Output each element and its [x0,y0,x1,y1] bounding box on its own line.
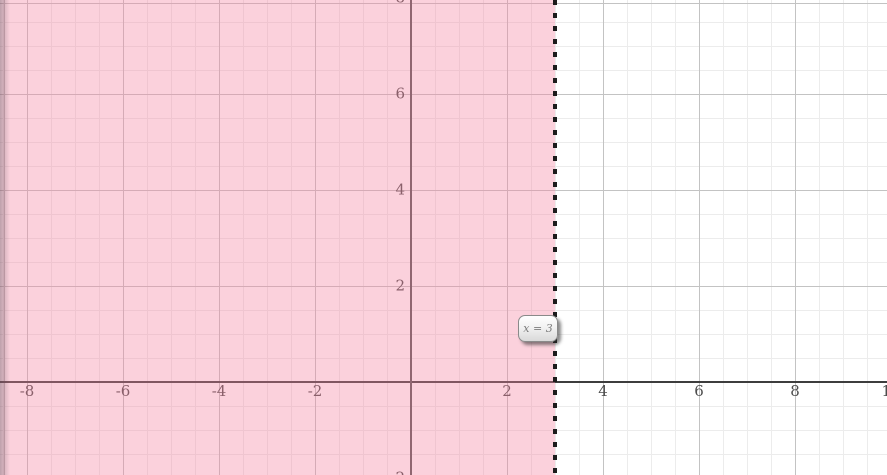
x-axis-tick-label: 4 [598,384,608,399]
shaded-region [0,0,555,475]
left-panel-shadow [0,0,10,475]
x-axis-tick-label: 10 [881,384,887,399]
boundary-line-x-equals-3[interactable] [553,0,557,475]
graph-canvas[interactable]: -8-6-4-2246810-22468 x = 3 [0,0,887,475]
x-axis-tick-label: 8 [790,384,800,399]
x-axis-tick-label: 6 [694,384,704,399]
equation-label[interactable]: x = 3 [518,315,558,342]
equation-label-text: x = 3 [523,322,552,335]
